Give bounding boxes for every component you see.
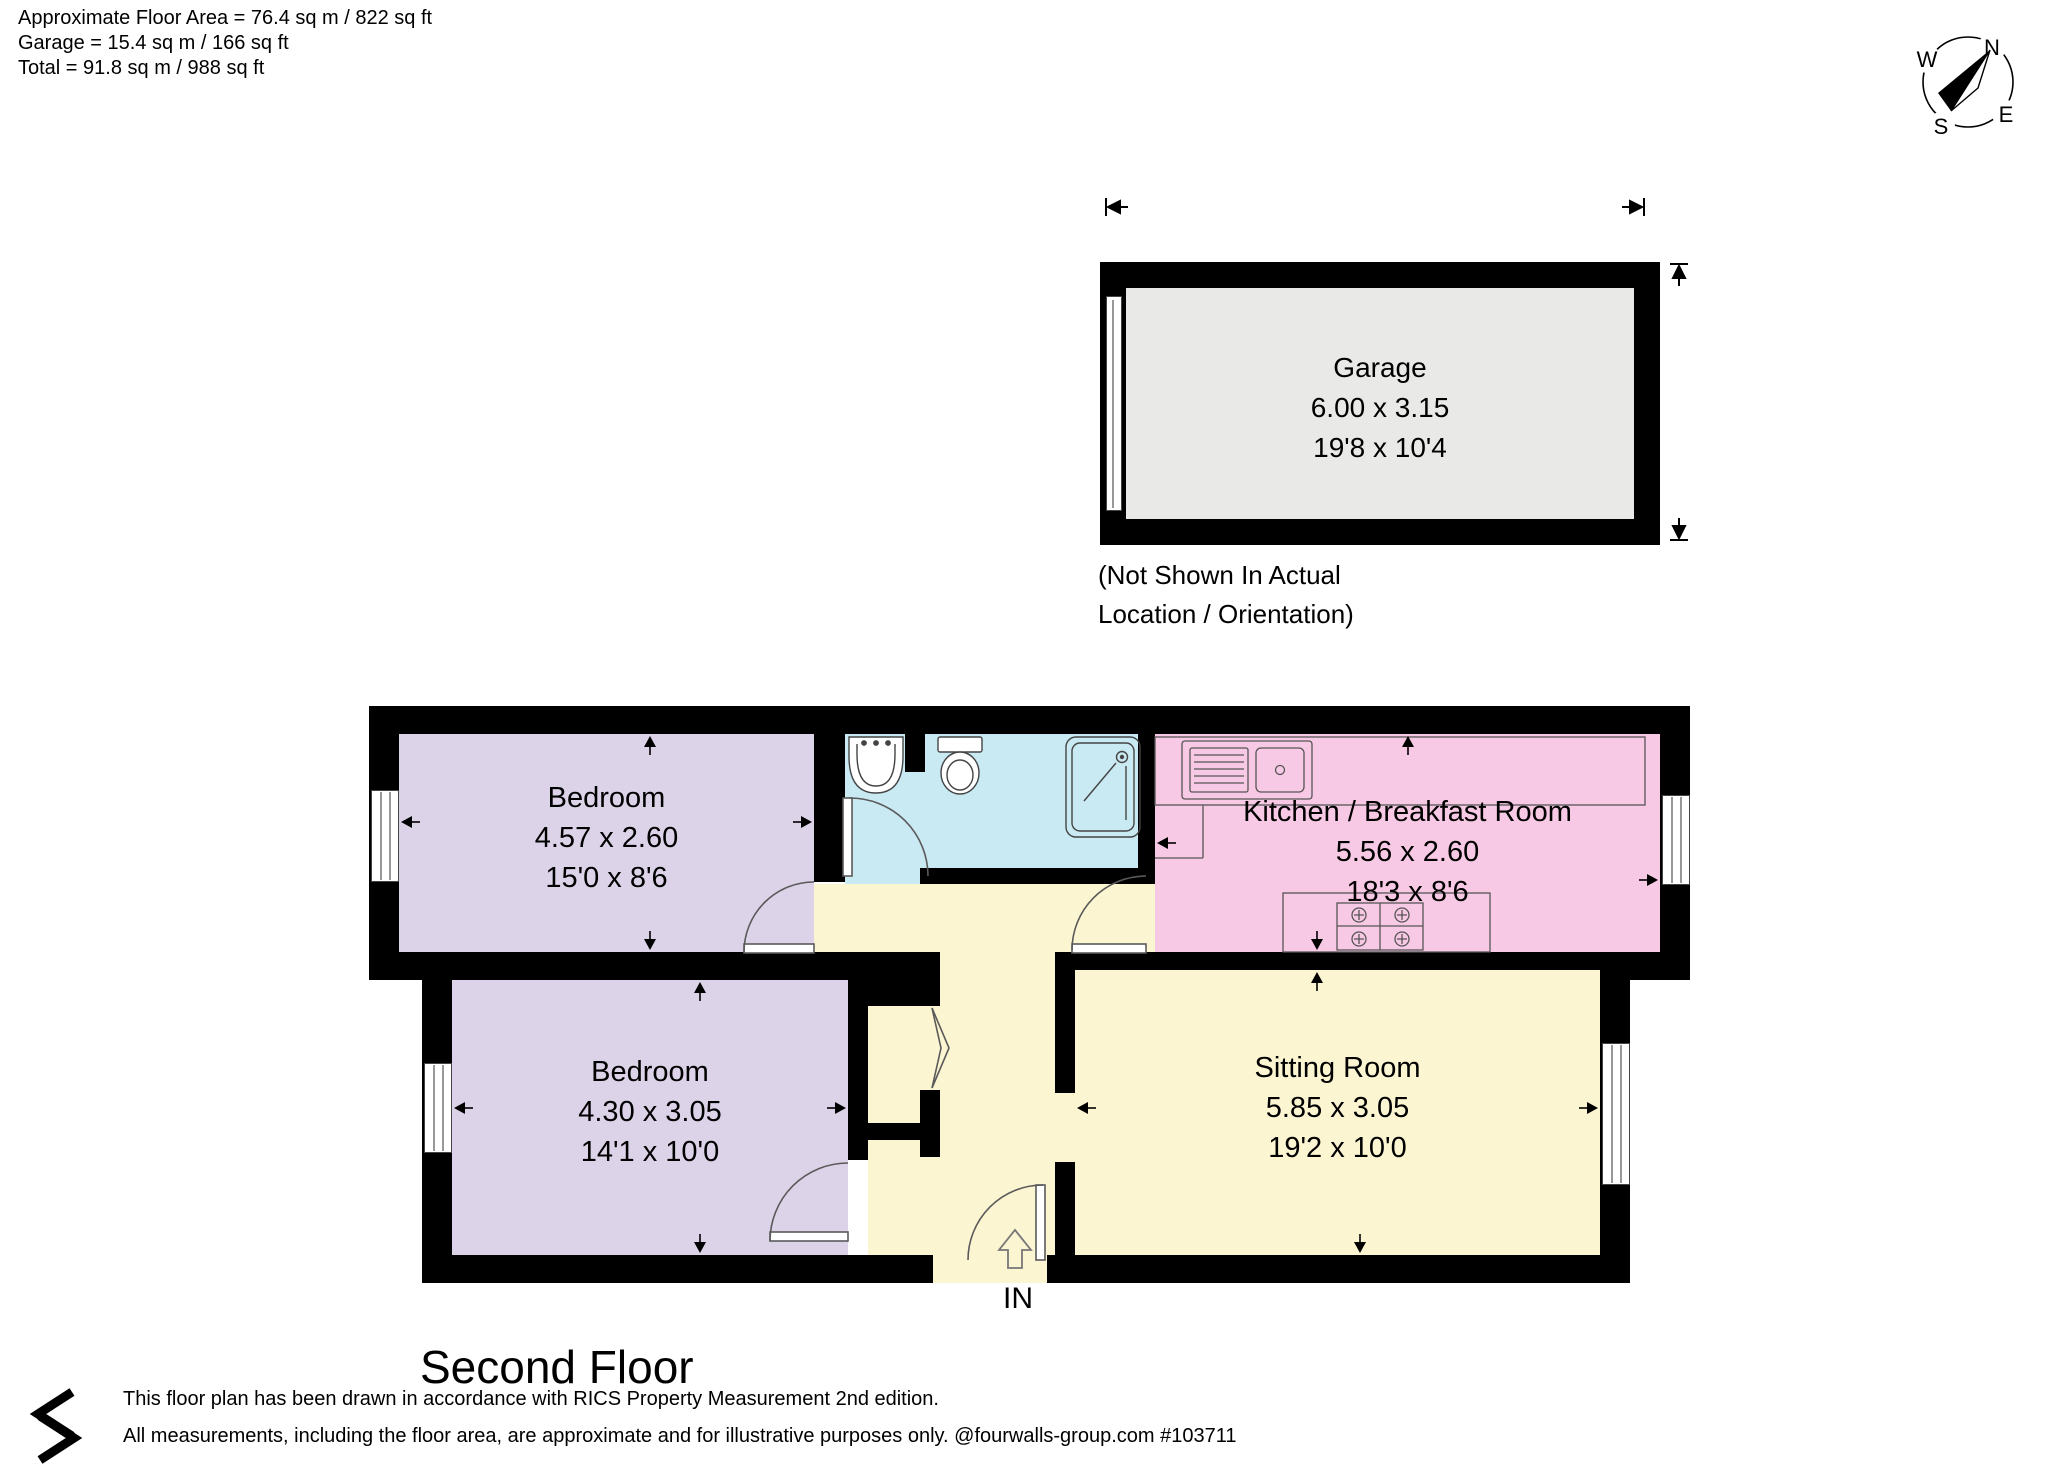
toilet-icon (938, 737, 982, 752)
room-name: Kitchen / Breakfast Room (1155, 792, 1660, 832)
disclaimer-line-1: This floor plan has been drawn in accord… (123, 1388, 939, 1411)
room-size-metric: 5.56 x 2.60 (1155, 832, 1660, 872)
fourwalls-logo (24, 1386, 88, 1466)
bedroom-1-door (744, 944, 814, 953)
kitchen-sink-icon (1182, 741, 1312, 799)
room-size-metric: 4.30 x 3.05 (452, 1092, 848, 1132)
room-size-metric: 5.85 x 3.05 (1075, 1088, 1600, 1128)
entrance-label: IN (985, 1282, 1051, 1316)
floor-title: Second Floor (420, 1340, 694, 1394)
bedroom-2-door (770, 1232, 848, 1241)
floorplan-page: Approximate Floor Area = 76.4 sq m / 822… (0, 0, 2048, 1474)
plan-detail-layer (0, 0, 2048, 1474)
room-name: Bedroom (452, 1052, 848, 1092)
bedroom-1-label: Bedroom 4.57 x 2.60 15'0 x 8'6 (399, 778, 814, 898)
bathroom-fixtures (849, 737, 1140, 837)
kitchen-label: Kitchen / Breakfast Room 5.56 x 2.60 18'… (1155, 792, 1660, 912)
room-size-imperial: 18'3 x 8'6 (1155, 872, 1660, 912)
room-name: Sitting Room (1075, 1048, 1600, 1088)
entrance-door (1036, 1185, 1045, 1260)
room-size-metric: 4.57 x 2.60 (399, 818, 814, 858)
sitting-room-label: Sitting Room 5.85 x 3.05 19'2 x 10'0 (1075, 1048, 1600, 1168)
room-size-imperial: 14'1 x 10'0 (452, 1132, 848, 1172)
entrance-arrow-icon (999, 1230, 1031, 1268)
room-name: Bedroom (399, 778, 814, 818)
bathroom-door (843, 798, 852, 876)
kitchen-door (1072, 944, 1146, 953)
bedroom-2-label: Bedroom 4.30 x 3.05 14'1 x 10'0 (452, 1052, 848, 1172)
room-size-imperial: 19'2 x 10'0 (1075, 1128, 1600, 1168)
shower-icon (1066, 737, 1140, 837)
garage-dimension-markers (1106, 198, 1688, 540)
disclaimer-line-2: All measurements, including the floor ar… (123, 1425, 1236, 1448)
room-size-imperial: 15'0 x 8'6 (399, 858, 814, 898)
